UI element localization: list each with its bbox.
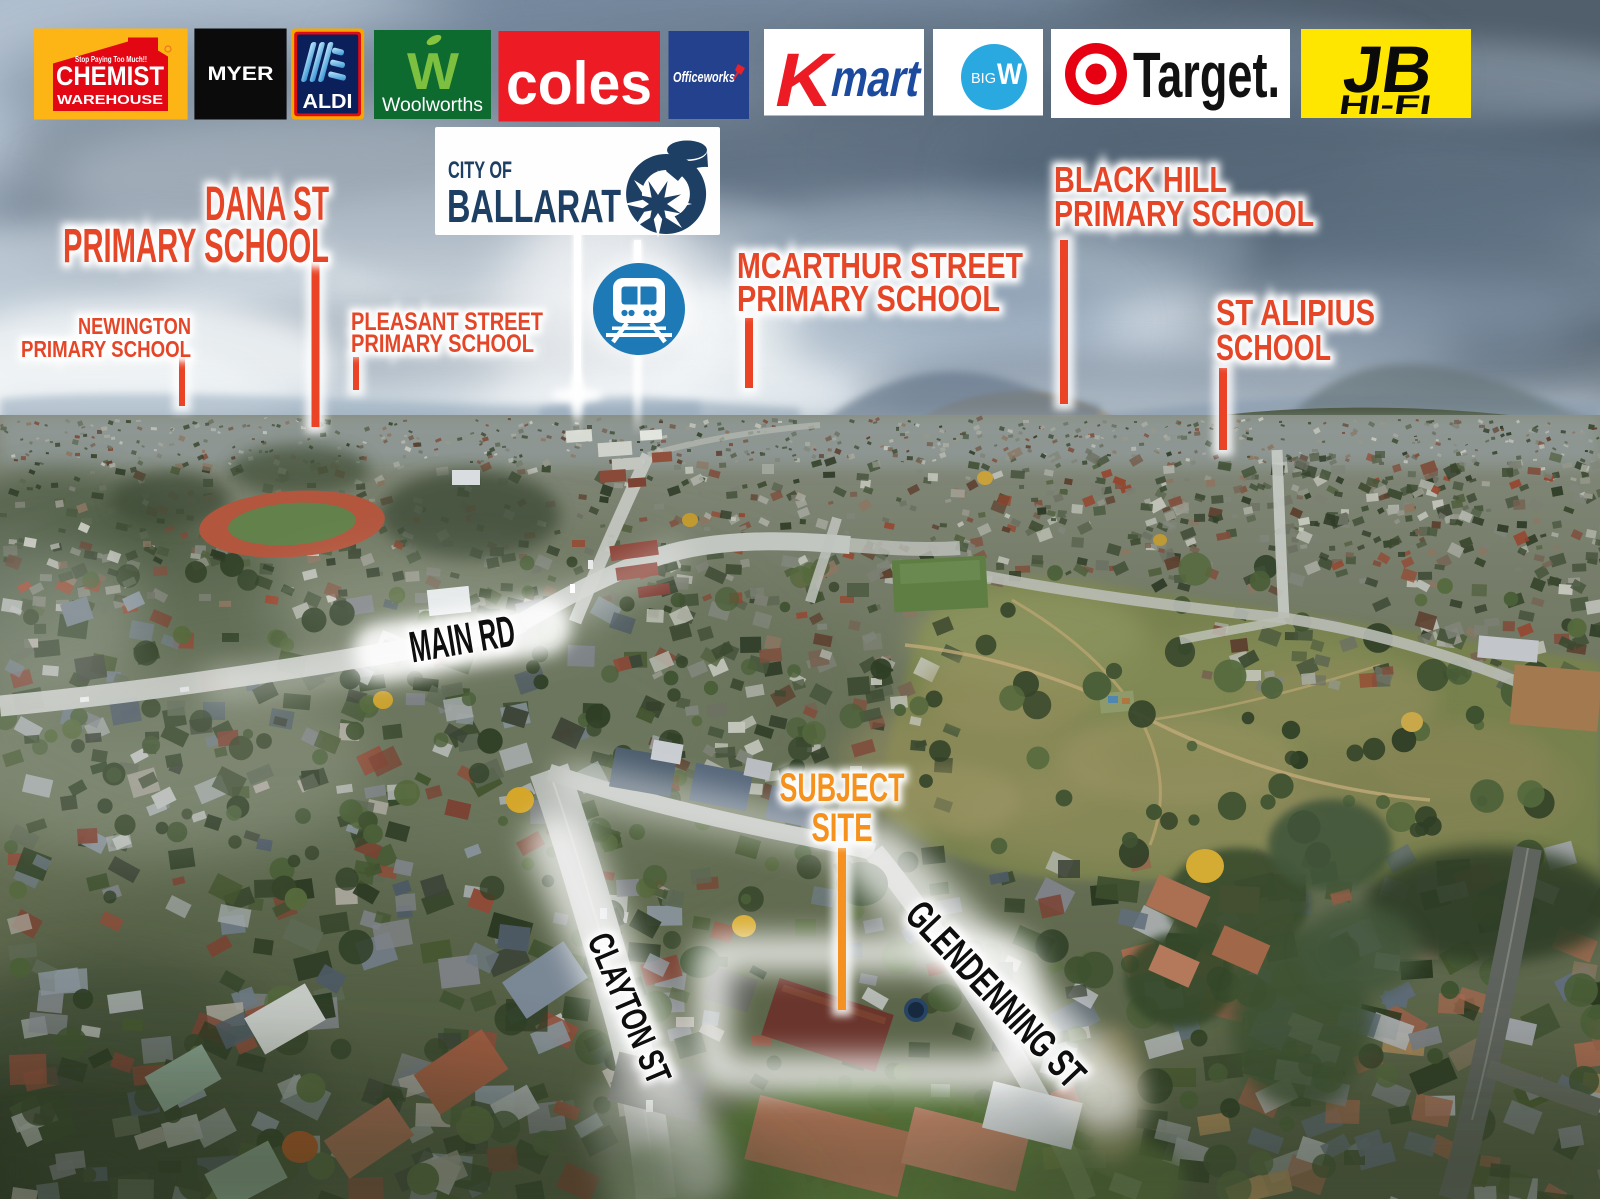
svg-text:SITE: SITE (812, 806, 873, 850)
svg-text:MYER: MYER (208, 64, 274, 85)
svg-text:Woolworths: Woolworths (382, 95, 483, 116)
svg-text:PRIMARY SCHOOL: PRIMARY SCHOOL (737, 278, 1000, 319)
svg-text:PRIMARY SCHOOL: PRIMARY SCHOOL (351, 330, 534, 358)
svg-text:W: W (407, 43, 460, 101)
svg-text:HI-FI: HI-FI (1337, 89, 1433, 120)
svg-text:mart: mart (826, 50, 926, 108)
svg-text:CHEMIST: CHEMIST (56, 61, 164, 91)
svg-text:W: W (997, 58, 1023, 91)
svg-text:Officeworks: Officeworks (673, 69, 735, 86)
svg-text:WAREHOUSE: WAREHOUSE (57, 92, 163, 107)
svg-text:SCHOOL: SCHOOL (1216, 327, 1331, 368)
svg-text:SUBJECT: SUBJECT (780, 766, 905, 810)
svg-text:PRIMARY SCHOOL: PRIMARY SCHOOL (21, 336, 191, 362)
svg-text:BIG: BIG (971, 70, 996, 87)
svg-text:BALLARAT: BALLARAT (447, 180, 621, 232)
svg-text:PRIMARY SCHOOL: PRIMARY SCHOOL (1054, 193, 1314, 234)
svg-text:ALDI: ALDI (303, 91, 353, 113)
svg-text:Target.: Target. (1133, 39, 1280, 111)
svg-text:coles: coles (506, 50, 652, 117)
svg-text:PRIMARY SCHOOL: PRIMARY SCHOOL (63, 220, 329, 273)
